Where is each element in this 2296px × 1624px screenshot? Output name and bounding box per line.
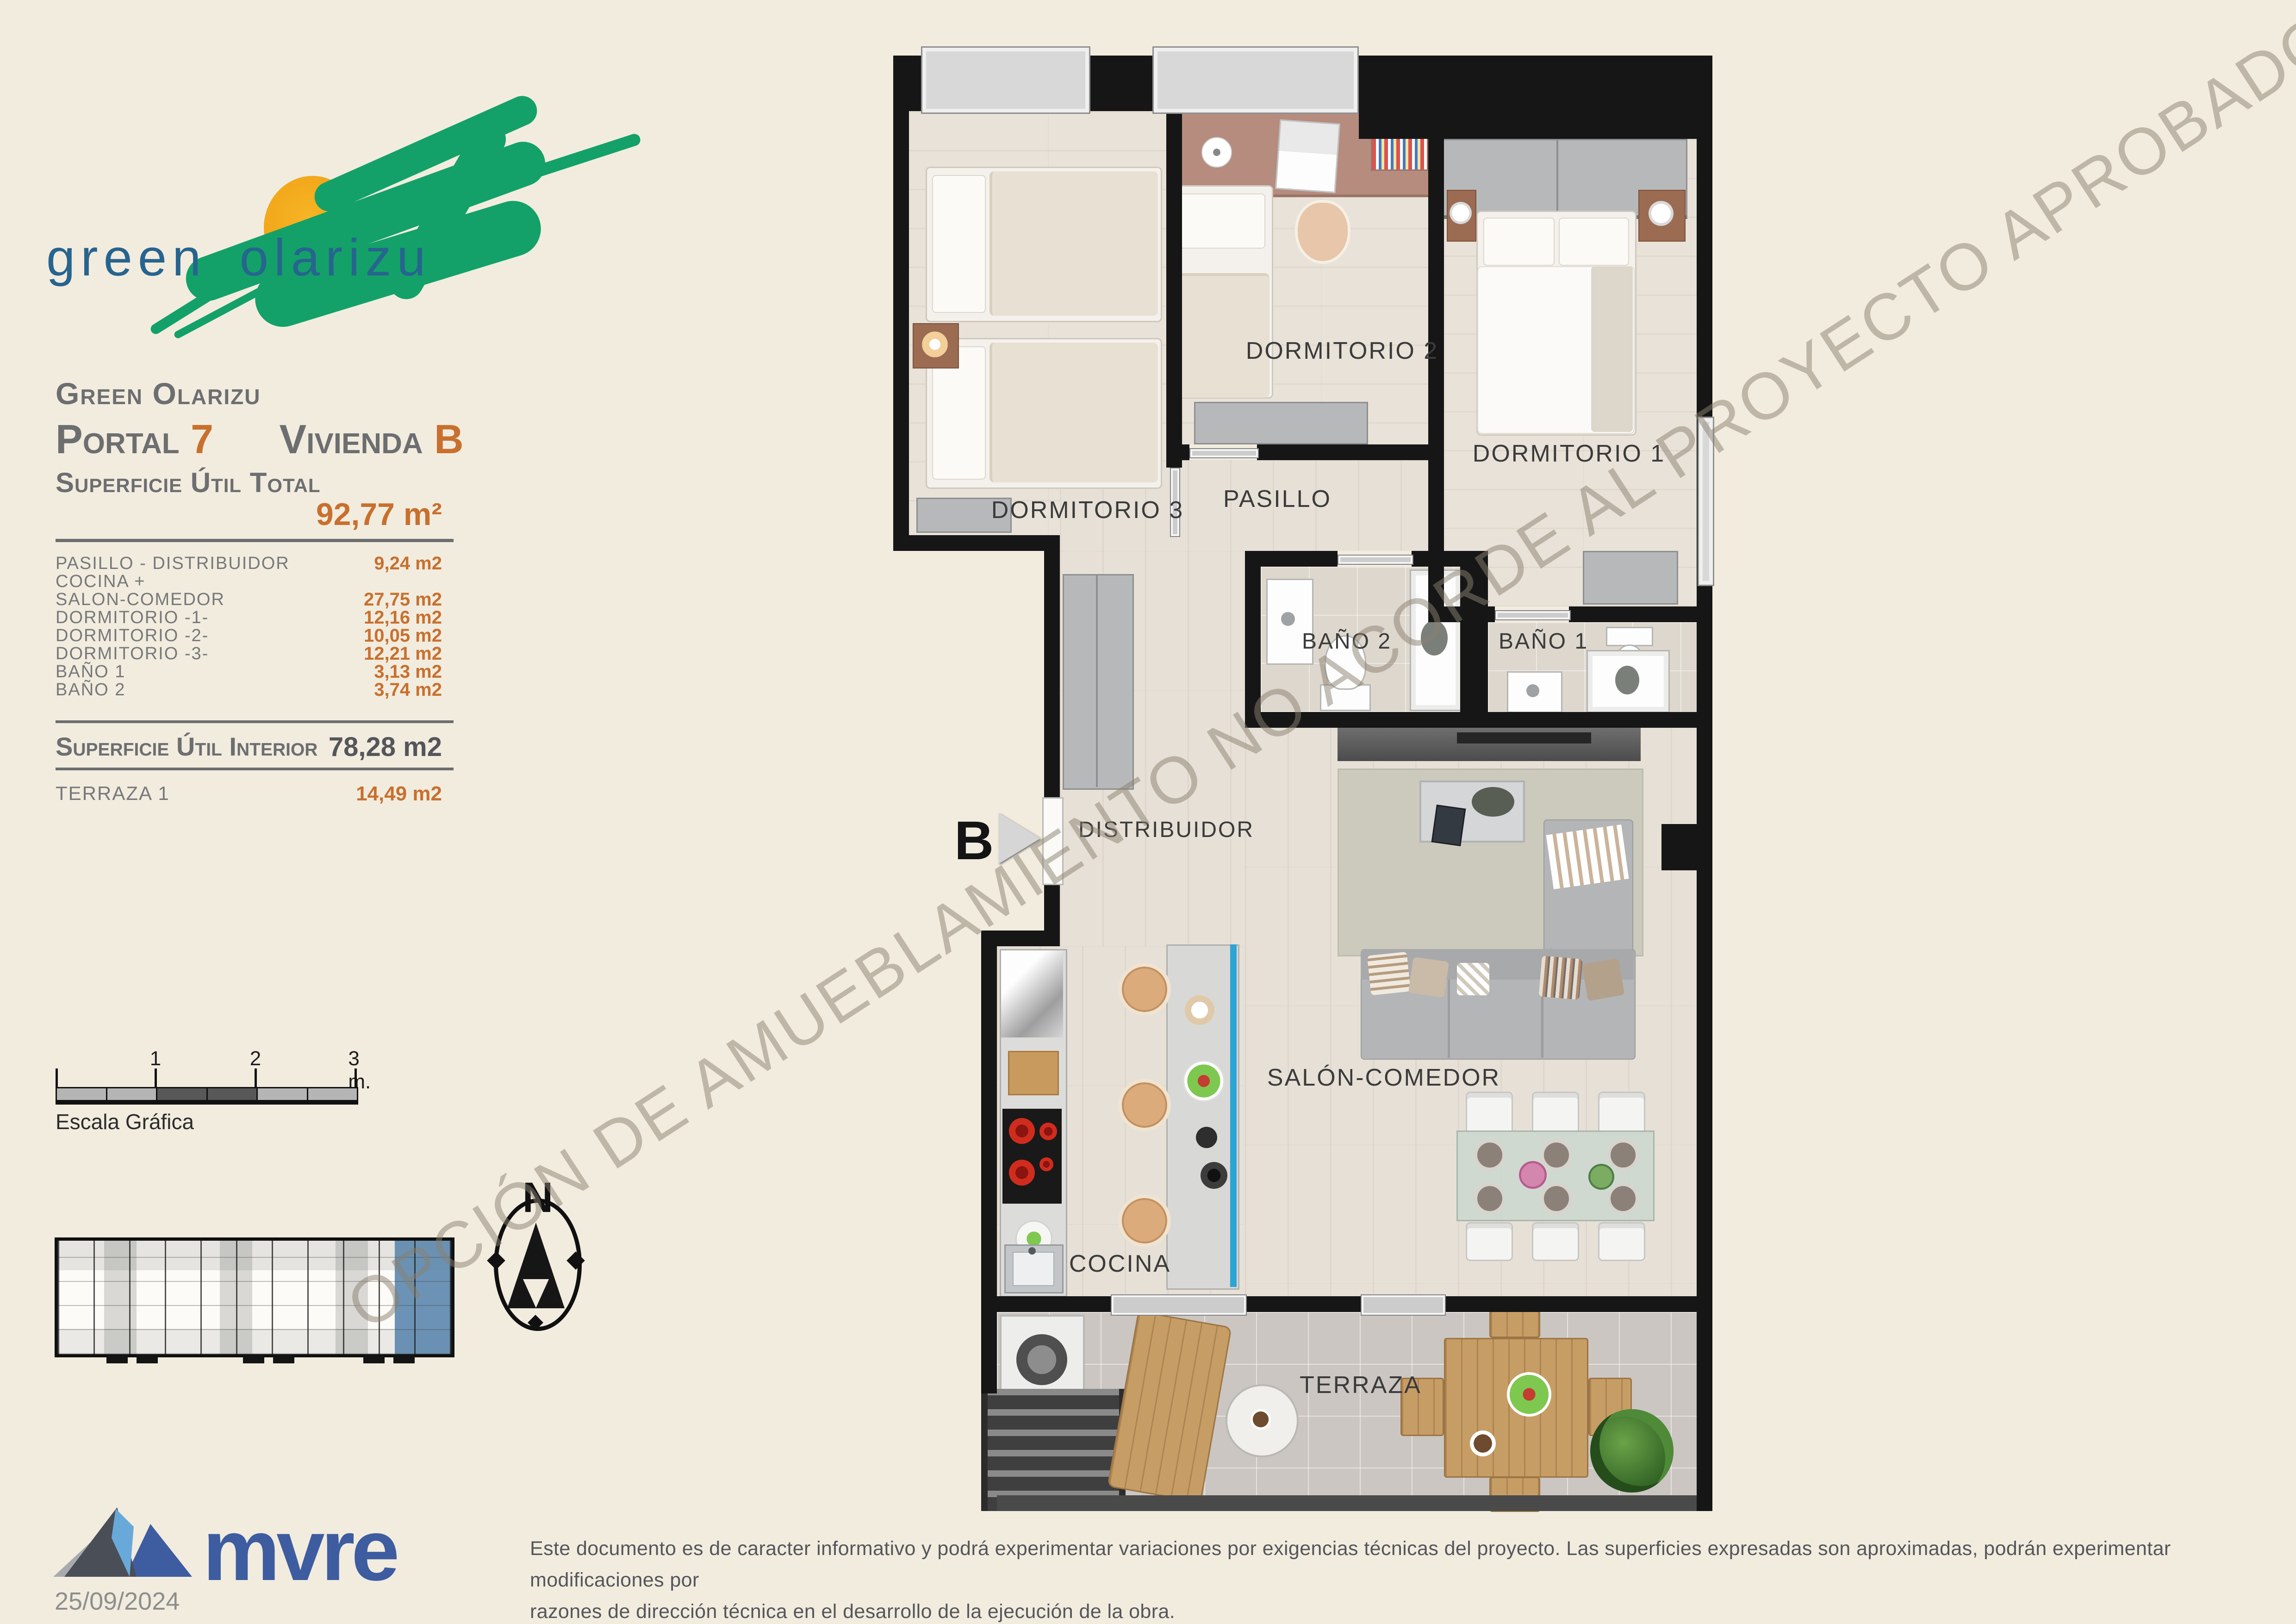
salad-plate-icon	[1183, 1060, 1225, 1102]
dining-chair	[1532, 1092, 1579, 1134]
bench	[1583, 551, 1678, 605]
terrace-door	[1111, 1294, 1247, 1316]
blanket	[989, 171, 1158, 316]
sliding-door	[1495, 610, 1571, 620]
room-label-salon: SALÓN-COMEDOR	[1267, 1064, 1500, 1092]
kitchen-sink-basin	[1013, 1252, 1054, 1286]
terrace-railing	[997, 1495, 1697, 1511]
pillow	[932, 175, 986, 313]
place-setting	[1541, 1140, 1572, 1170]
sliding-door	[1338, 555, 1413, 565]
sofa-seam	[1448, 980, 1450, 1058]
disclaimer-line-2: razones de dirección técnica en el desar…	[530, 1596, 2270, 1624]
wall	[1044, 551, 1060, 797]
coffee-cup-icon	[1251, 1409, 1271, 1430]
window	[921, 46, 1090, 114]
throw-blanket	[1591, 266, 1633, 432]
bar-stool	[1118, 963, 1171, 1016]
cutting-board-icon	[1008, 1051, 1059, 1095]
bowl-icon	[1185, 995, 1214, 1025]
cushion	[1582, 958, 1625, 1001]
faucet-icon	[1281, 612, 1295, 626]
sliding-door	[1189, 448, 1259, 458]
wall	[1697, 56, 1712, 1511]
room-label-terraza: TERRAZA	[1300, 1371, 1422, 1399]
lamp-icon	[1649, 201, 1674, 226]
tablet-icon	[1431, 805, 1466, 846]
cushion	[1538, 956, 1582, 999]
terrace-door	[1361, 1294, 1446, 1316]
island-edge	[1230, 944, 1237, 1287]
room-label-pasillo: PASILLO	[1223, 485, 1332, 513]
dining-chair	[1598, 1092, 1645, 1134]
wardrobe-divider	[1556, 139, 1558, 214]
laptop-icon	[1275, 119, 1340, 194]
place-setting	[1608, 1140, 1638, 1170]
decor-plate-icon	[1472, 787, 1514, 817]
wall	[981, 1296, 1111, 1312]
faucet-icon	[1526, 684, 1539, 697]
dining-chair	[1466, 1222, 1513, 1261]
room-label-bano1: BAÑO 1	[1499, 629, 1588, 654]
room-label-cocina: COCINA	[1069, 1250, 1171, 1278]
faucet-icon	[1028, 1247, 1036, 1255]
flower-centerpiece-icon	[1519, 1161, 1547, 1189]
pillow	[1559, 218, 1629, 266]
mvre-mountain-icon	[53, 1507, 192, 1577]
brand-wordmark: mvre	[203, 1500, 396, 1600]
wall	[1245, 1296, 1361, 1312]
wall-pillar	[1661, 824, 1697, 870]
burner-icon	[1009, 1160, 1035, 1186]
plant-icon	[1590, 1409, 1674, 1493]
window	[1152, 46, 1359, 114]
dining-chair	[1598, 1222, 1645, 1261]
wall	[1182, 444, 1189, 460]
wall	[1257, 444, 1428, 460]
plan-sheet: green olarizu Green Olarizu Portal 7 Viv…	[0, 0, 2296, 1624]
lamp-icon	[1450, 202, 1472, 224]
dresser	[1194, 402, 1368, 444]
wall	[1569, 606, 1712, 622]
room-label-dormitorio2: DORMITORIO 2	[1246, 337, 1438, 365]
place-setting	[1608, 1183, 1638, 1214]
dining-chair	[1532, 1222, 1579, 1261]
coffee-cup-icon	[1470, 1430, 1496, 1456]
washer-drum-icon	[1016, 1334, 1067, 1385]
toilet	[1606, 627, 1653, 646]
closet-divider	[1096, 574, 1098, 787]
wall	[1359, 56, 1712, 139]
cushion	[1457, 963, 1489, 995]
shower-drain-icon	[1615, 666, 1639, 694]
desk-chair	[1295, 200, 1350, 264]
decor-dot-icon	[1201, 1162, 1227, 1189]
wall	[1166, 56, 1182, 468]
place-setting	[1475, 1183, 1505, 1214]
flower-centerpiece-icon	[1588, 1164, 1614, 1190]
disclaimer: Este documento es de caracter informativ…	[530, 1533, 2270, 1624]
bar-stool	[1118, 1194, 1171, 1247]
tv-screen	[1457, 732, 1591, 743]
place-setting	[1541, 1183, 1572, 1214]
salad-plate-icon	[1507, 1372, 1551, 1417]
dining-chair	[1466, 1092, 1513, 1134]
wall	[893, 535, 1060, 551]
lamp-icon	[922, 331, 948, 357]
blanket	[1172, 273, 1269, 398]
decor-dot-icon	[1196, 1127, 1217, 1148]
cd-icon	[1201, 137, 1232, 168]
date-label: 25/09/2024	[55, 1587, 180, 1616]
oven-column	[1001, 950, 1063, 1037]
wall	[893, 56, 909, 551]
pillow	[1483, 218, 1555, 266]
pillow	[1178, 194, 1265, 249]
wall	[1088, 56, 1152, 111]
place-setting	[1475, 1140, 1505, 1170]
cushion	[1408, 957, 1449, 998]
plaid-throw	[1546, 824, 1629, 889]
cushion	[1367, 952, 1411, 996]
burner-icon	[1039, 1157, 1053, 1171]
burner-icon	[1009, 1118, 1035, 1144]
blanket	[989, 343, 1158, 482]
pergola-lattice	[981, 1389, 1126, 1511]
closet	[1063, 574, 1134, 790]
room-label-dormitorio3: DORMITORIO 3	[991, 496, 1184, 524]
bar-stool	[1118, 1079, 1171, 1131]
wall	[981, 931, 997, 1393]
wall	[1444, 1296, 1697, 1312]
disclaimer-line-1: Este documento es de caracter informativ…	[530, 1533, 2270, 1596]
burner-icon	[1039, 1123, 1057, 1140]
